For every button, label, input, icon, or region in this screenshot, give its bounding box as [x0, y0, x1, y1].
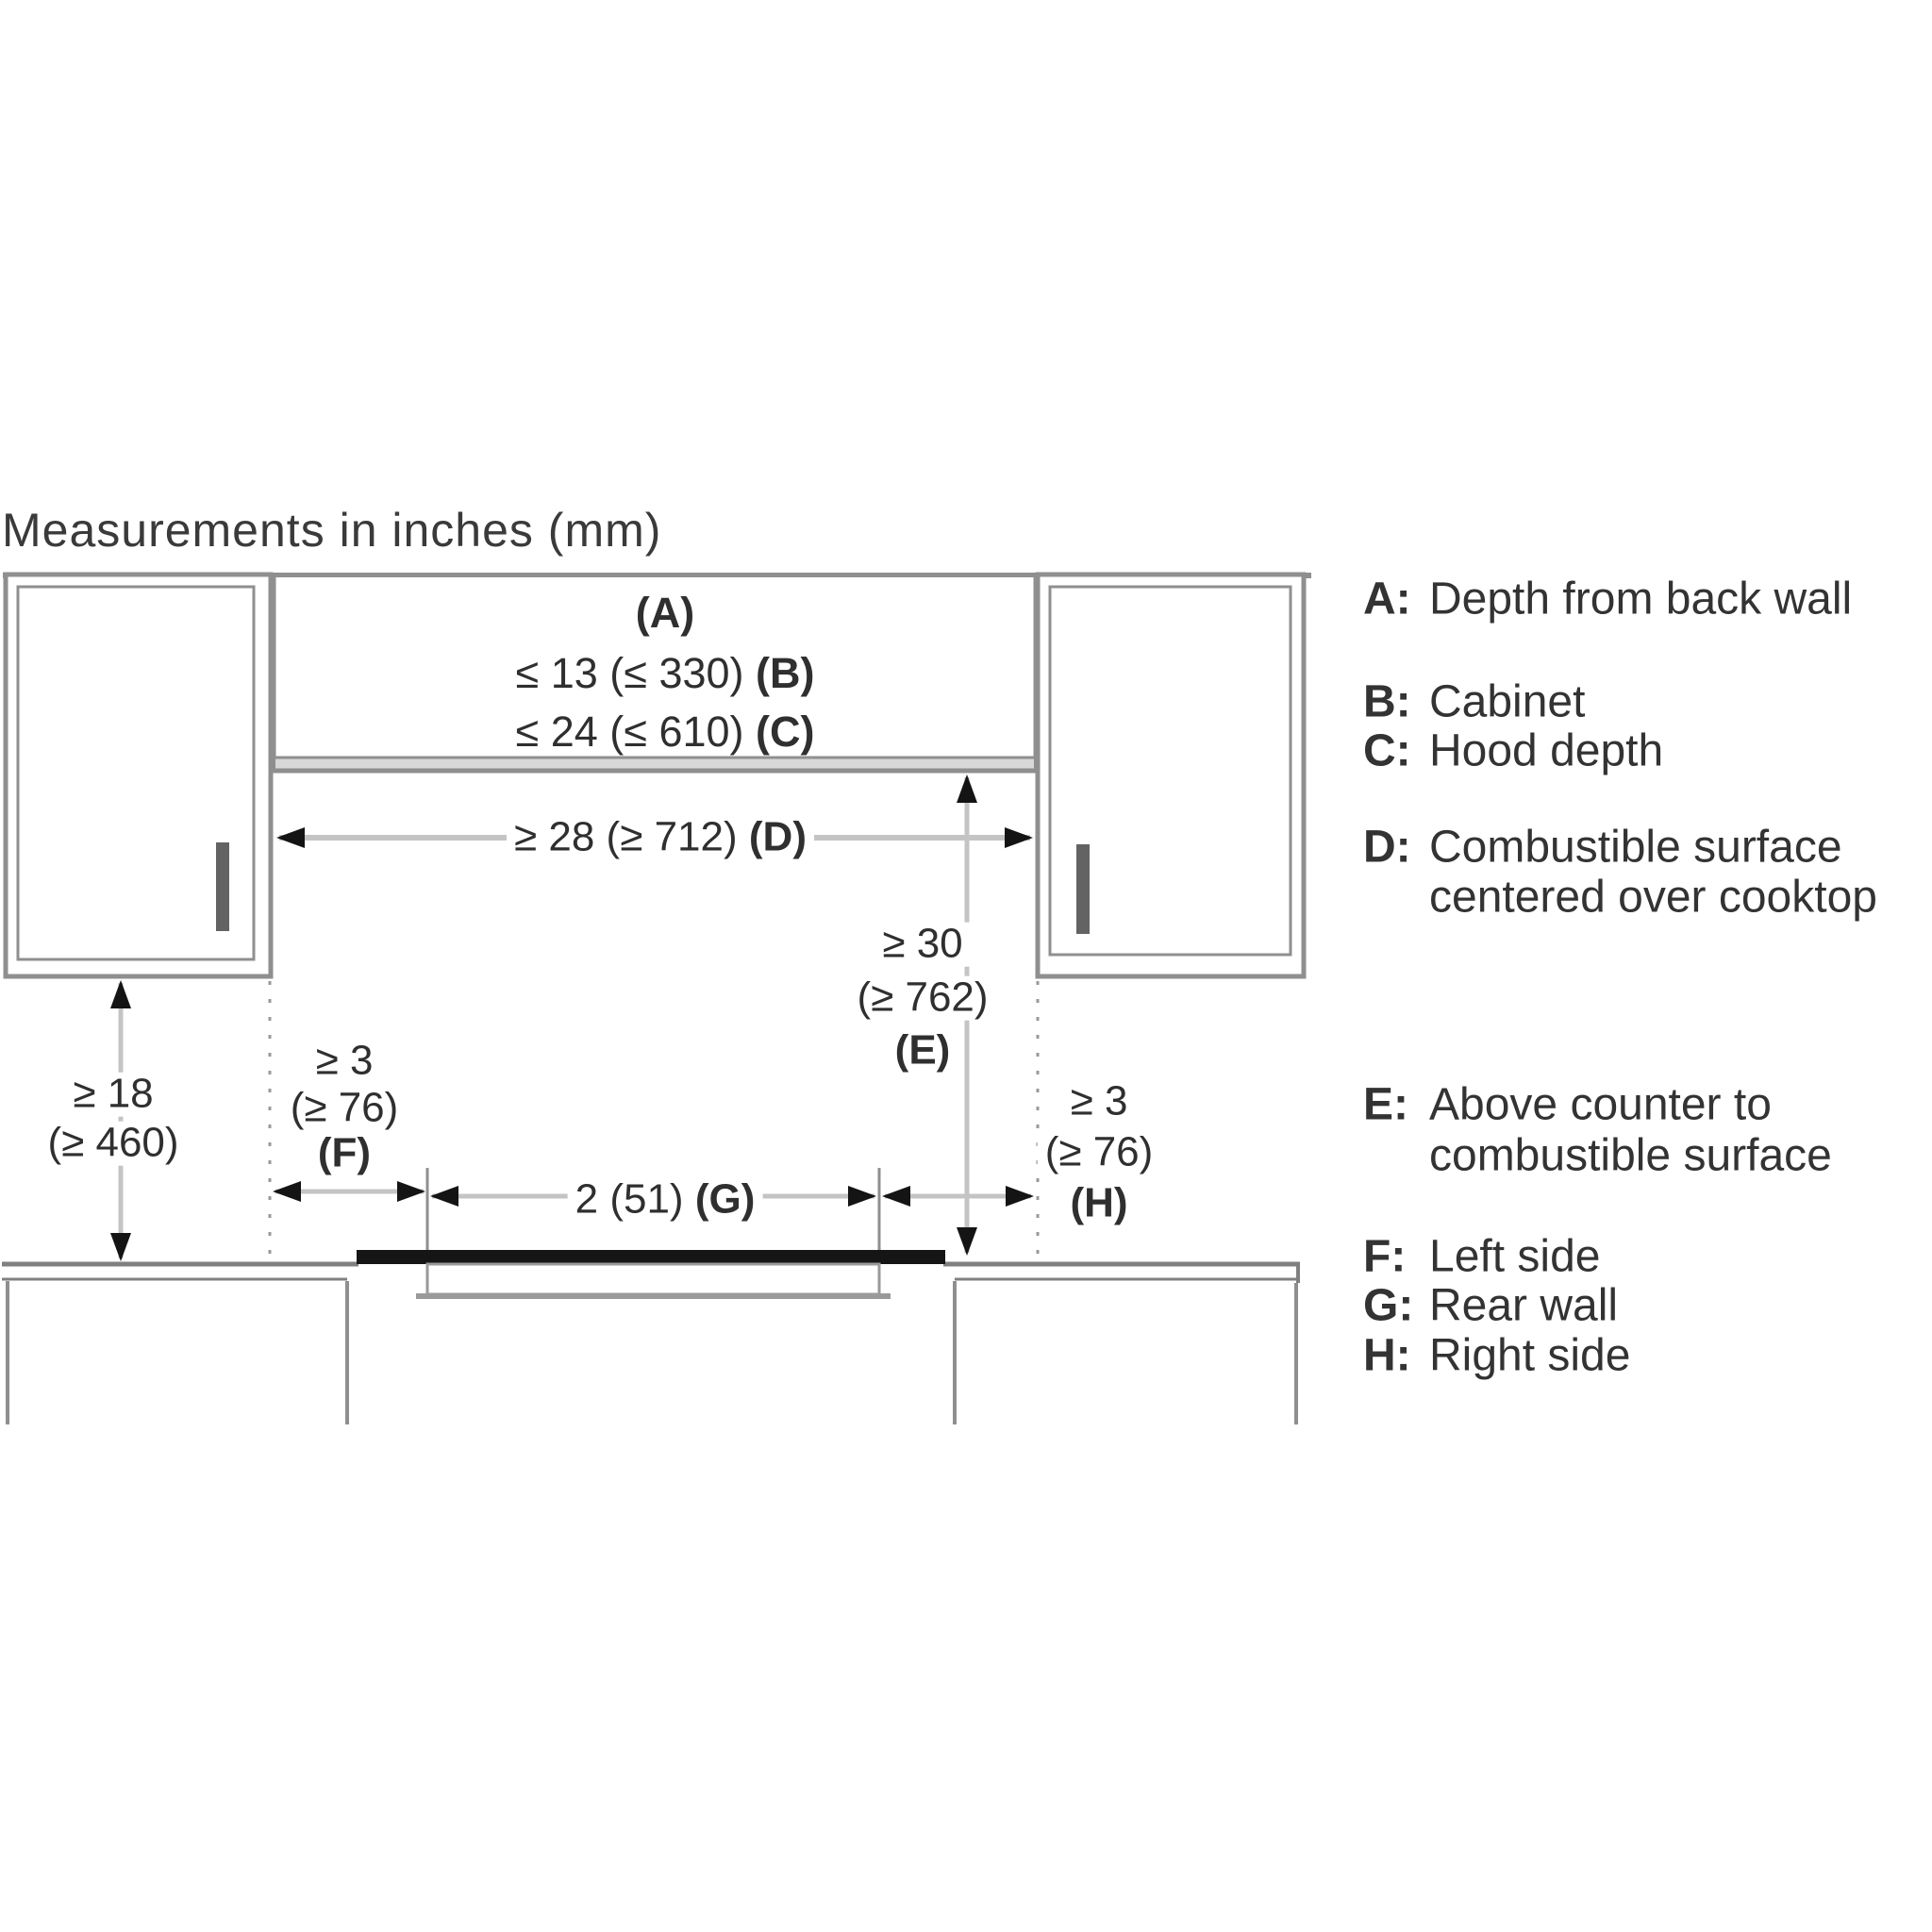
counter-left	[2, 1264, 358, 1279]
dim-b: ≤ 13 (≤ 330) (B)	[516, 649, 815, 698]
dim-g: 2 (51) (G)	[568, 1178, 763, 1223]
dimension-f-arrow	[273, 1181, 425, 1202]
legend-letter: B:	[1363, 676, 1429, 728]
dim-d: ≥ 28 (≥ 712) (D)	[507, 816, 814, 860]
left-upper-cabinet	[6, 575, 271, 976]
dim-b-value: ≤ 13 (≤ 330)	[516, 649, 744, 697]
legend-text: Cabinet	[1429, 677, 1585, 727]
dim-h-mm: (≥ 76)	[1038, 1131, 1161, 1175]
installation-diagram-page: Measurements in inches (mm) (A) ≤ 13 (≤ …	[0, 0, 1932, 1932]
base-cabinets	[8, 1281, 1296, 1424]
dim-a-label: (A)	[636, 589, 694, 638]
legend-item-h: H:Right side	[1363, 1330, 1630, 1382]
dim-c-value: ≤ 24 (≤ 610)	[516, 708, 744, 756]
dim-f-label: (F)	[310, 1132, 378, 1176]
dim-f-mm: (≥ 76)	[283, 1087, 407, 1131]
dim-e-value: ≥ 30	[874, 923, 970, 967]
legend-item-g: G:Rear wall	[1363, 1280, 1618, 1332]
cooktop-surface-bar	[357, 1250, 945, 1264]
legend-text: centered over cooktop	[1429, 873, 1877, 923]
legend-text: Depth from back wall	[1429, 575, 1852, 625]
legend-letter: F:	[1363, 1231, 1429, 1283]
legend-text: Above counter to	[1429, 1080, 1772, 1130]
dim-d-value: ≥ 28 (≥ 712)	[514, 814, 738, 860]
legend-letter: E:	[1363, 1079, 1429, 1131]
diagram-title: Measurements in inches (mm)	[2, 503, 661, 558]
dim-h-label: (H)	[1062, 1182, 1135, 1226]
left-cabinet-handle	[216, 842, 229, 931]
legend-item-d: D:Combustible surface	[1363, 822, 1842, 874]
legend-text: Left side	[1429, 1232, 1600, 1282]
dim-g-value: 2 (51)	[575, 1176, 684, 1223]
legend-item-f: F:Left side	[1363, 1231, 1600, 1283]
dim-g-label: (G)	[695, 1176, 756, 1223]
legend-letter: D:	[1363, 822, 1429, 874]
legend-item-c: C:Hood depth	[1363, 725, 1663, 777]
counter-right	[943, 1262, 1300, 1283]
legend-text: Combustible surface	[1429, 823, 1842, 873]
legend-letter: C:	[1363, 725, 1429, 777]
legend-text: Hood depth	[1429, 726, 1663, 776]
dim-e-label: (E)	[888, 1029, 958, 1074]
legend-item-e: E:Above counter to	[1363, 1079, 1772, 1131]
clearance-18-mm: (≥ 460)	[40, 1122, 186, 1166]
dim-f-value: ≥ 3	[308, 1040, 381, 1084]
dim-d-label: (D)	[749, 814, 807, 860]
legend-letter: H:	[1363, 1330, 1429, 1382]
dim-e-mm: (≥ 762)	[849, 976, 995, 1021]
legend-text: combustible surface	[1429, 1131, 1832, 1181]
clearance-18-value: ≥ 18	[65, 1073, 160, 1117]
right-cabinet-handle	[1076, 844, 1090, 934]
dimension-h-arrow	[882, 1186, 1034, 1207]
dim-b-label: (B)	[756, 649, 814, 697]
dim-c-label: (C)	[756, 708, 814, 756]
cooktop	[357, 1250, 945, 1296]
hood-bottom-band	[275, 758, 1034, 770]
legend-text: Rear wall	[1429, 1281, 1618, 1331]
legend-item-d-line2: centered over cooktop	[1429, 872, 1877, 924]
dim-h-value: ≥ 3	[1063, 1080, 1136, 1124]
legend-item-a: A:Depth from back wall	[1363, 574, 1852, 625]
legend-item-b: B:Cabinet	[1363, 676, 1585, 728]
legend-letter: G:	[1363, 1280, 1429, 1332]
dim-c: ≤ 24 (≤ 610) (C)	[516, 708, 815, 757]
legend-text: Right side	[1429, 1331, 1630, 1381]
cooktop-body	[427, 1264, 879, 1294]
legend-item-e-line2: combustible surface	[1429, 1130, 1832, 1182]
right-upper-cabinet	[1038, 575, 1304, 976]
legend-letter: A:	[1363, 574, 1429, 625]
